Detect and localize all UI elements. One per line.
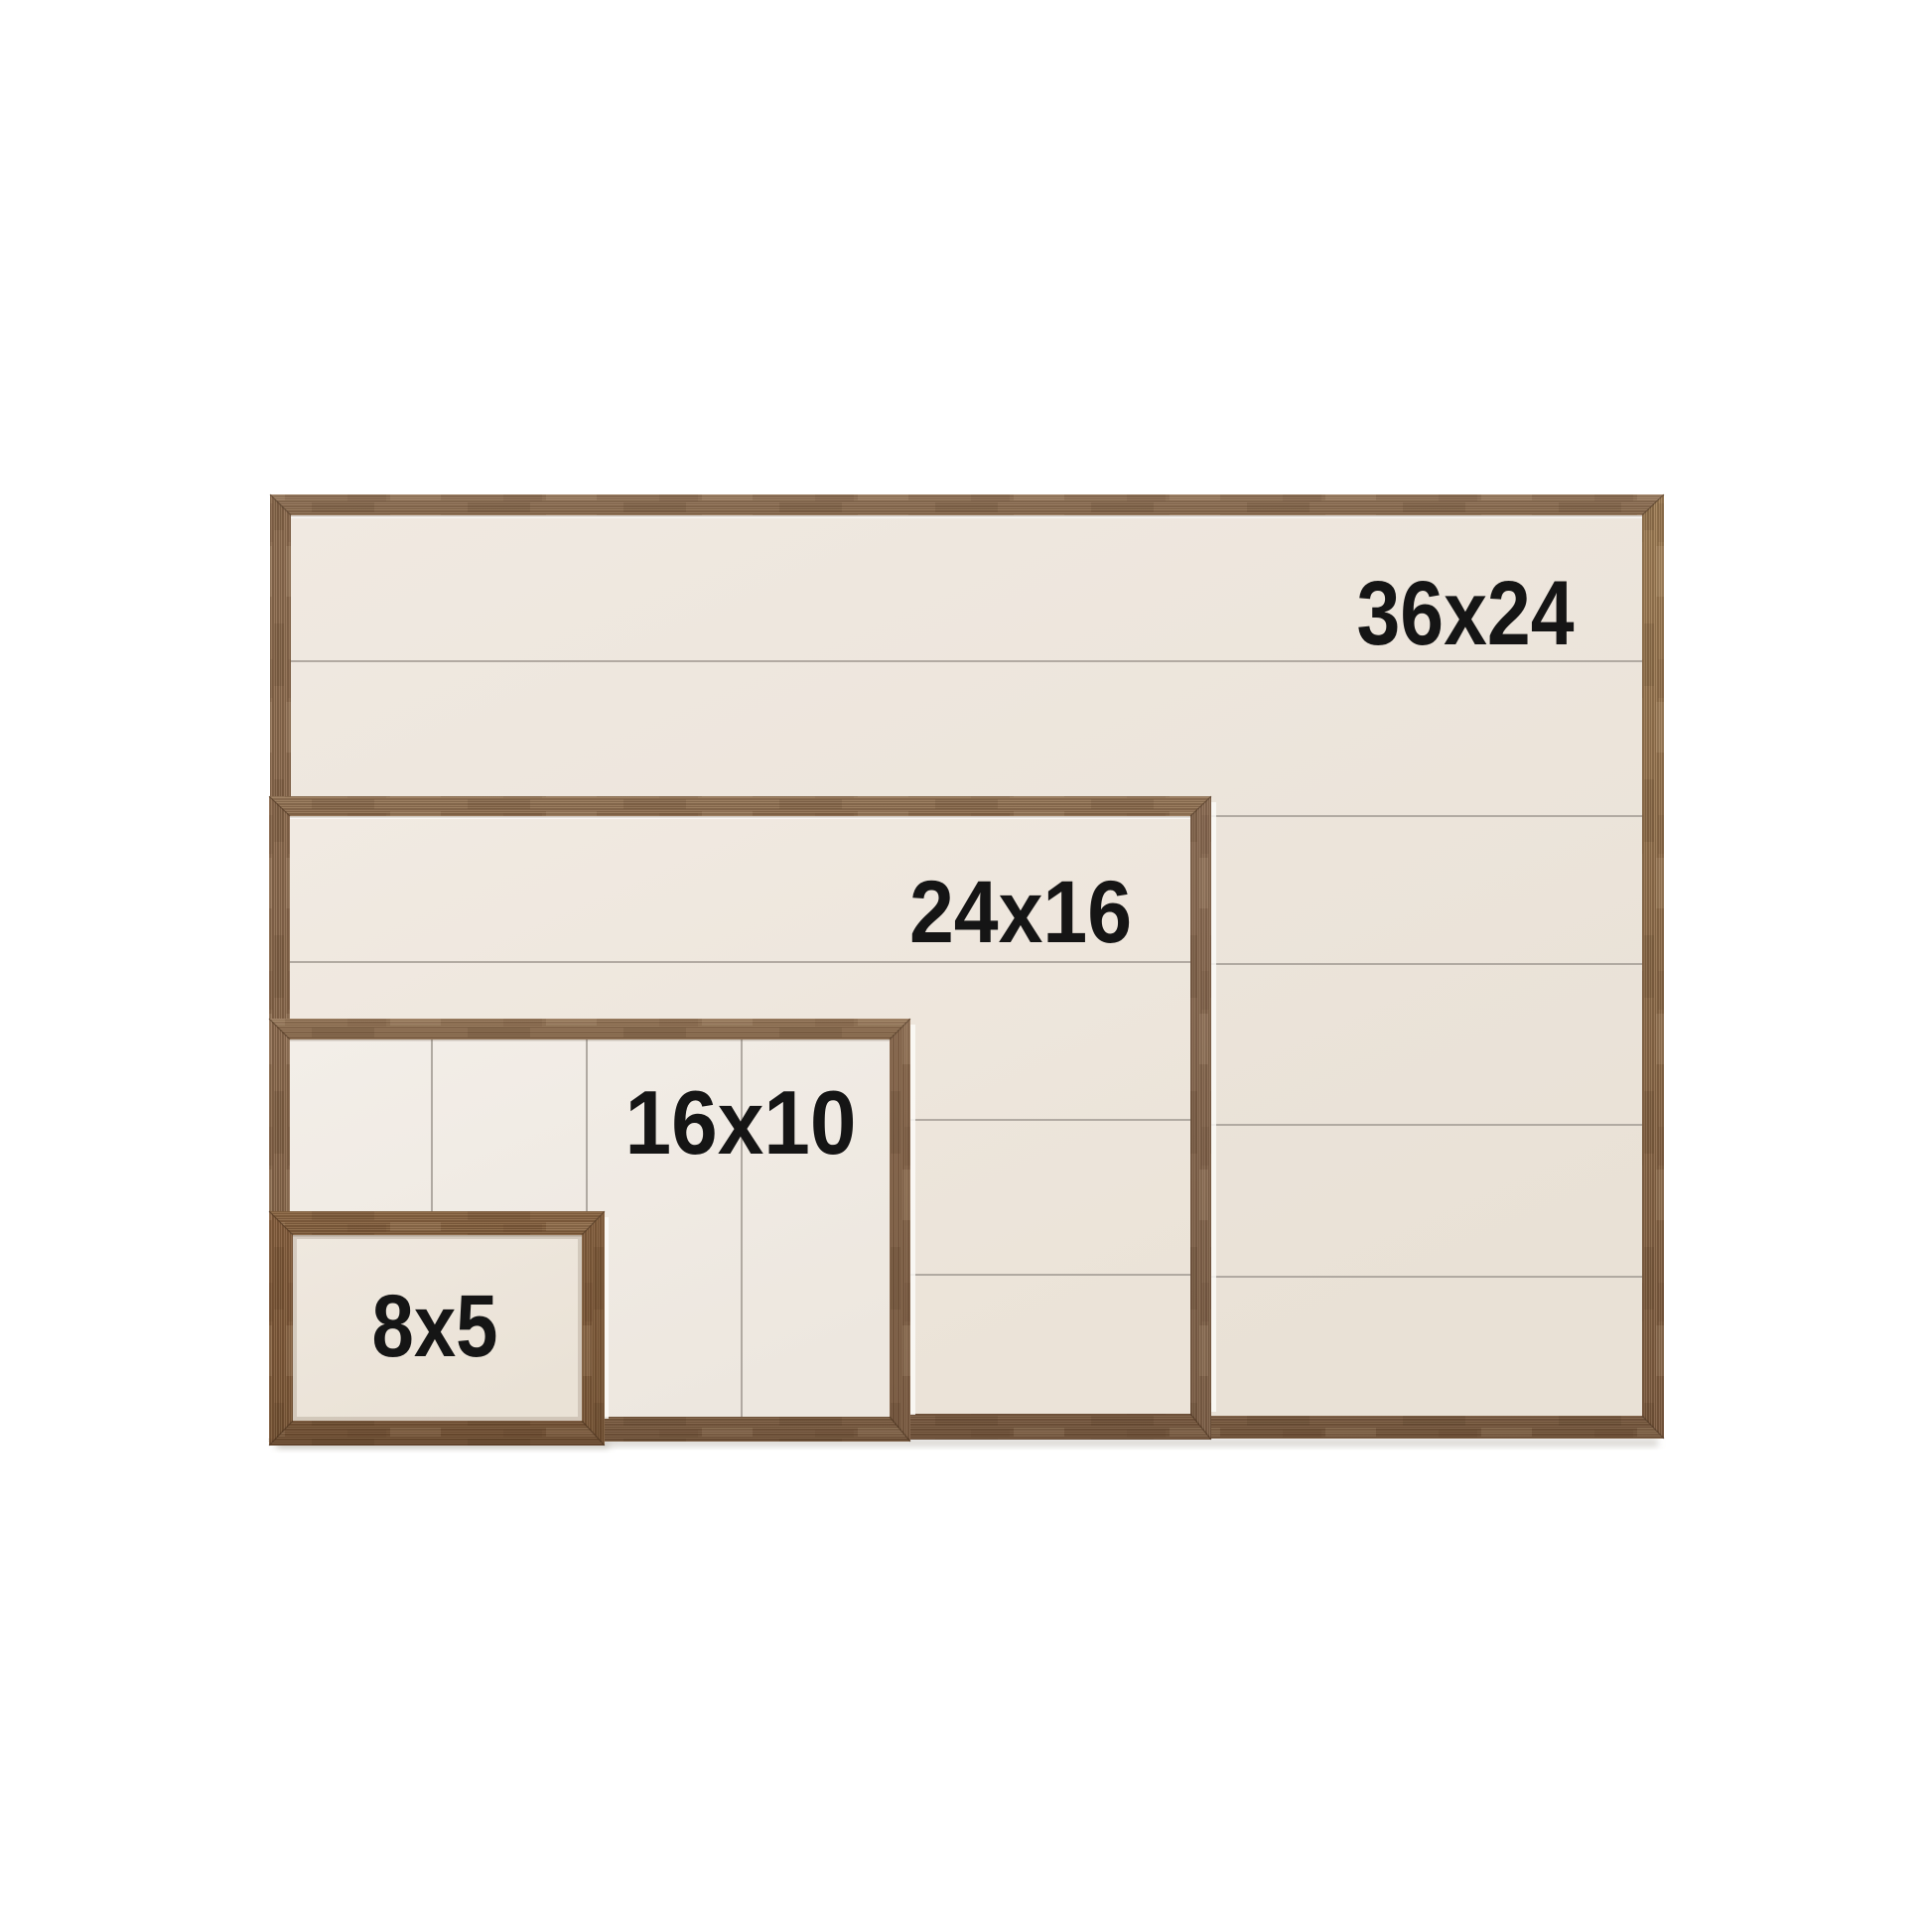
svg-text:16x10: 16x10	[625, 1073, 857, 1173]
svg-text:24x16: 24x16	[909, 862, 1132, 961]
svg-text:36x24: 36x24	[1357, 563, 1575, 664]
svg-text:8x5: 8x5	[372, 1276, 498, 1375]
